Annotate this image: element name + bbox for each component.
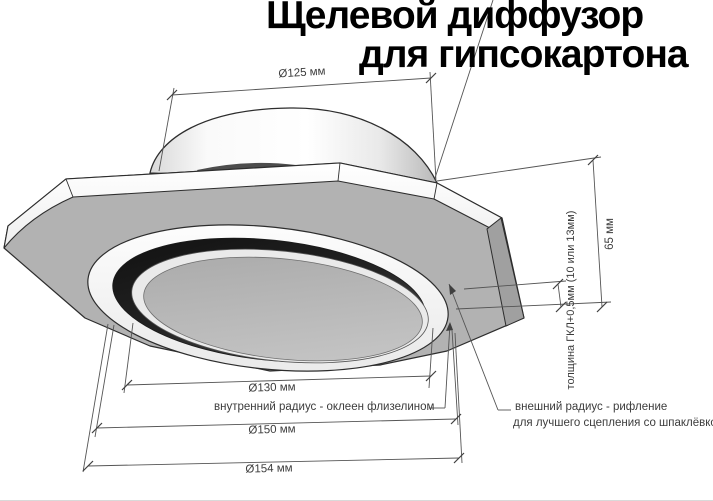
middle-diameter-label: Ø150 мм	[238, 423, 306, 437]
ext-collar-right	[430, 72, 436, 181]
dim-gkl-thickness	[558, 284, 561, 307]
gkl-thickness-label: толщина ГКЛ+0,5мм (10 или 13мм)	[565, 205, 577, 395]
ext-height-top	[437, 157, 601, 181]
page-title-line1: Щелевой диффузор	[266, 0, 643, 37]
dim-height	[593, 160, 602, 307]
inner-radius-callout: внутренний радиус - оклеен флизелином	[214, 401, 434, 413]
height-label: 65 мм	[604, 210, 616, 258]
dim-collar-diameter	[172, 78, 431, 95]
ext-d154-left	[83, 324, 108, 472]
outer-radius-callout-line2: для лучшего сцепления со шпаклёвкой	[513, 417, 713, 429]
ext-d150-left	[95, 325, 114, 437]
outer-radius-callout-line1: внешний радиус - рифление	[515, 401, 667, 413]
inner-diameter-label: Ø130 мм	[238, 381, 306, 395]
technical-drawing-page: Щелевой диффузор для гипсокартона Ø125 м…	[0, 0, 713, 501]
page-title-line2: для гипсокартона	[359, 35, 688, 76]
outer-diameter-label: Ø154 мм	[235, 462, 303, 476]
